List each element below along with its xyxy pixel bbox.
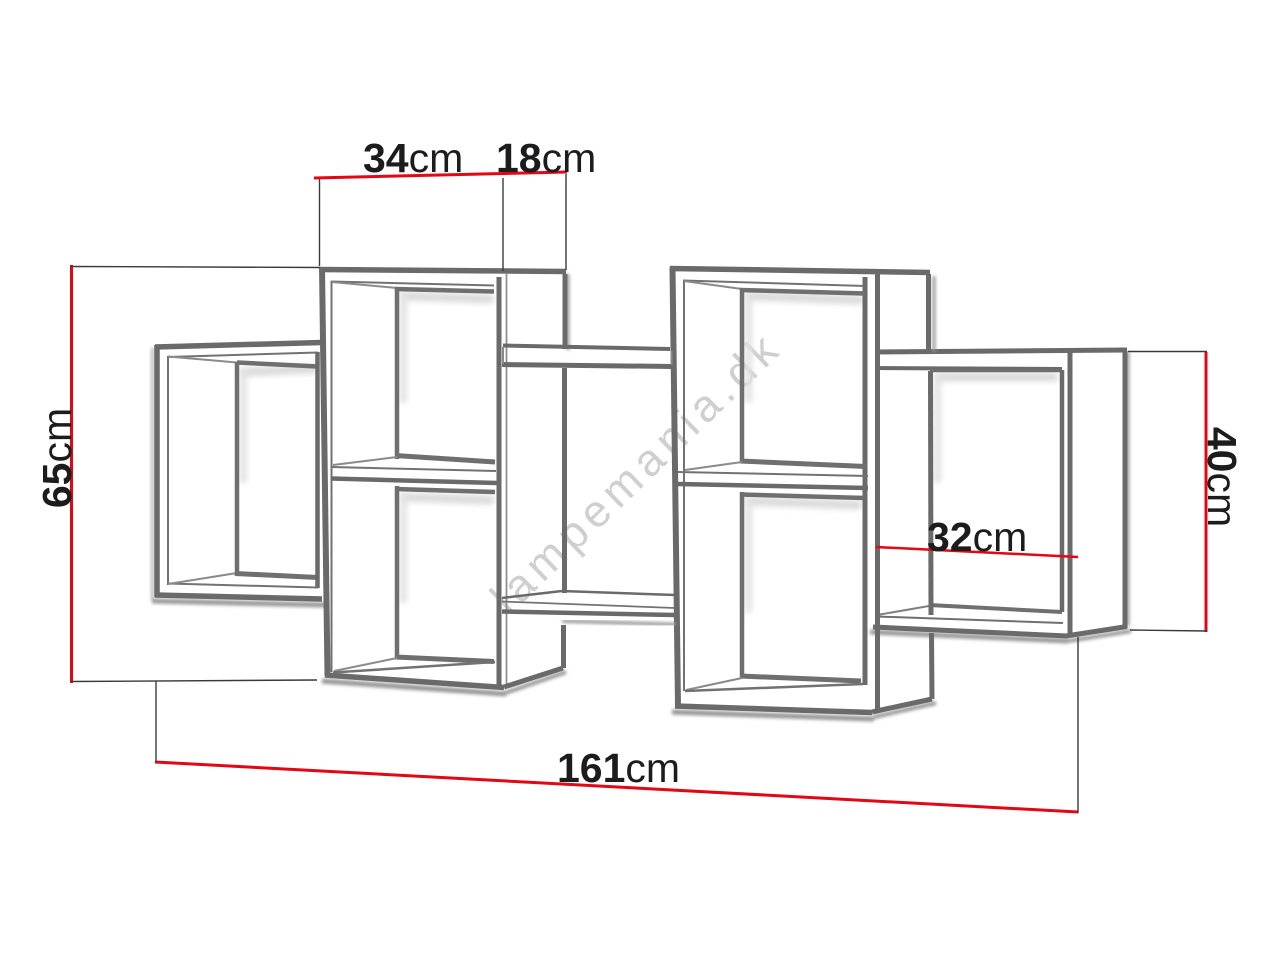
svg-text:40cm: 40cm xyxy=(1199,427,1245,527)
svg-text:34cm: 34cm xyxy=(363,135,463,181)
svg-text:32cm: 32cm xyxy=(927,514,1027,560)
svg-text:18cm: 18cm xyxy=(496,135,596,181)
svg-text:161cm: 161cm xyxy=(557,745,680,791)
svg-text:65cm: 65cm xyxy=(34,408,80,508)
